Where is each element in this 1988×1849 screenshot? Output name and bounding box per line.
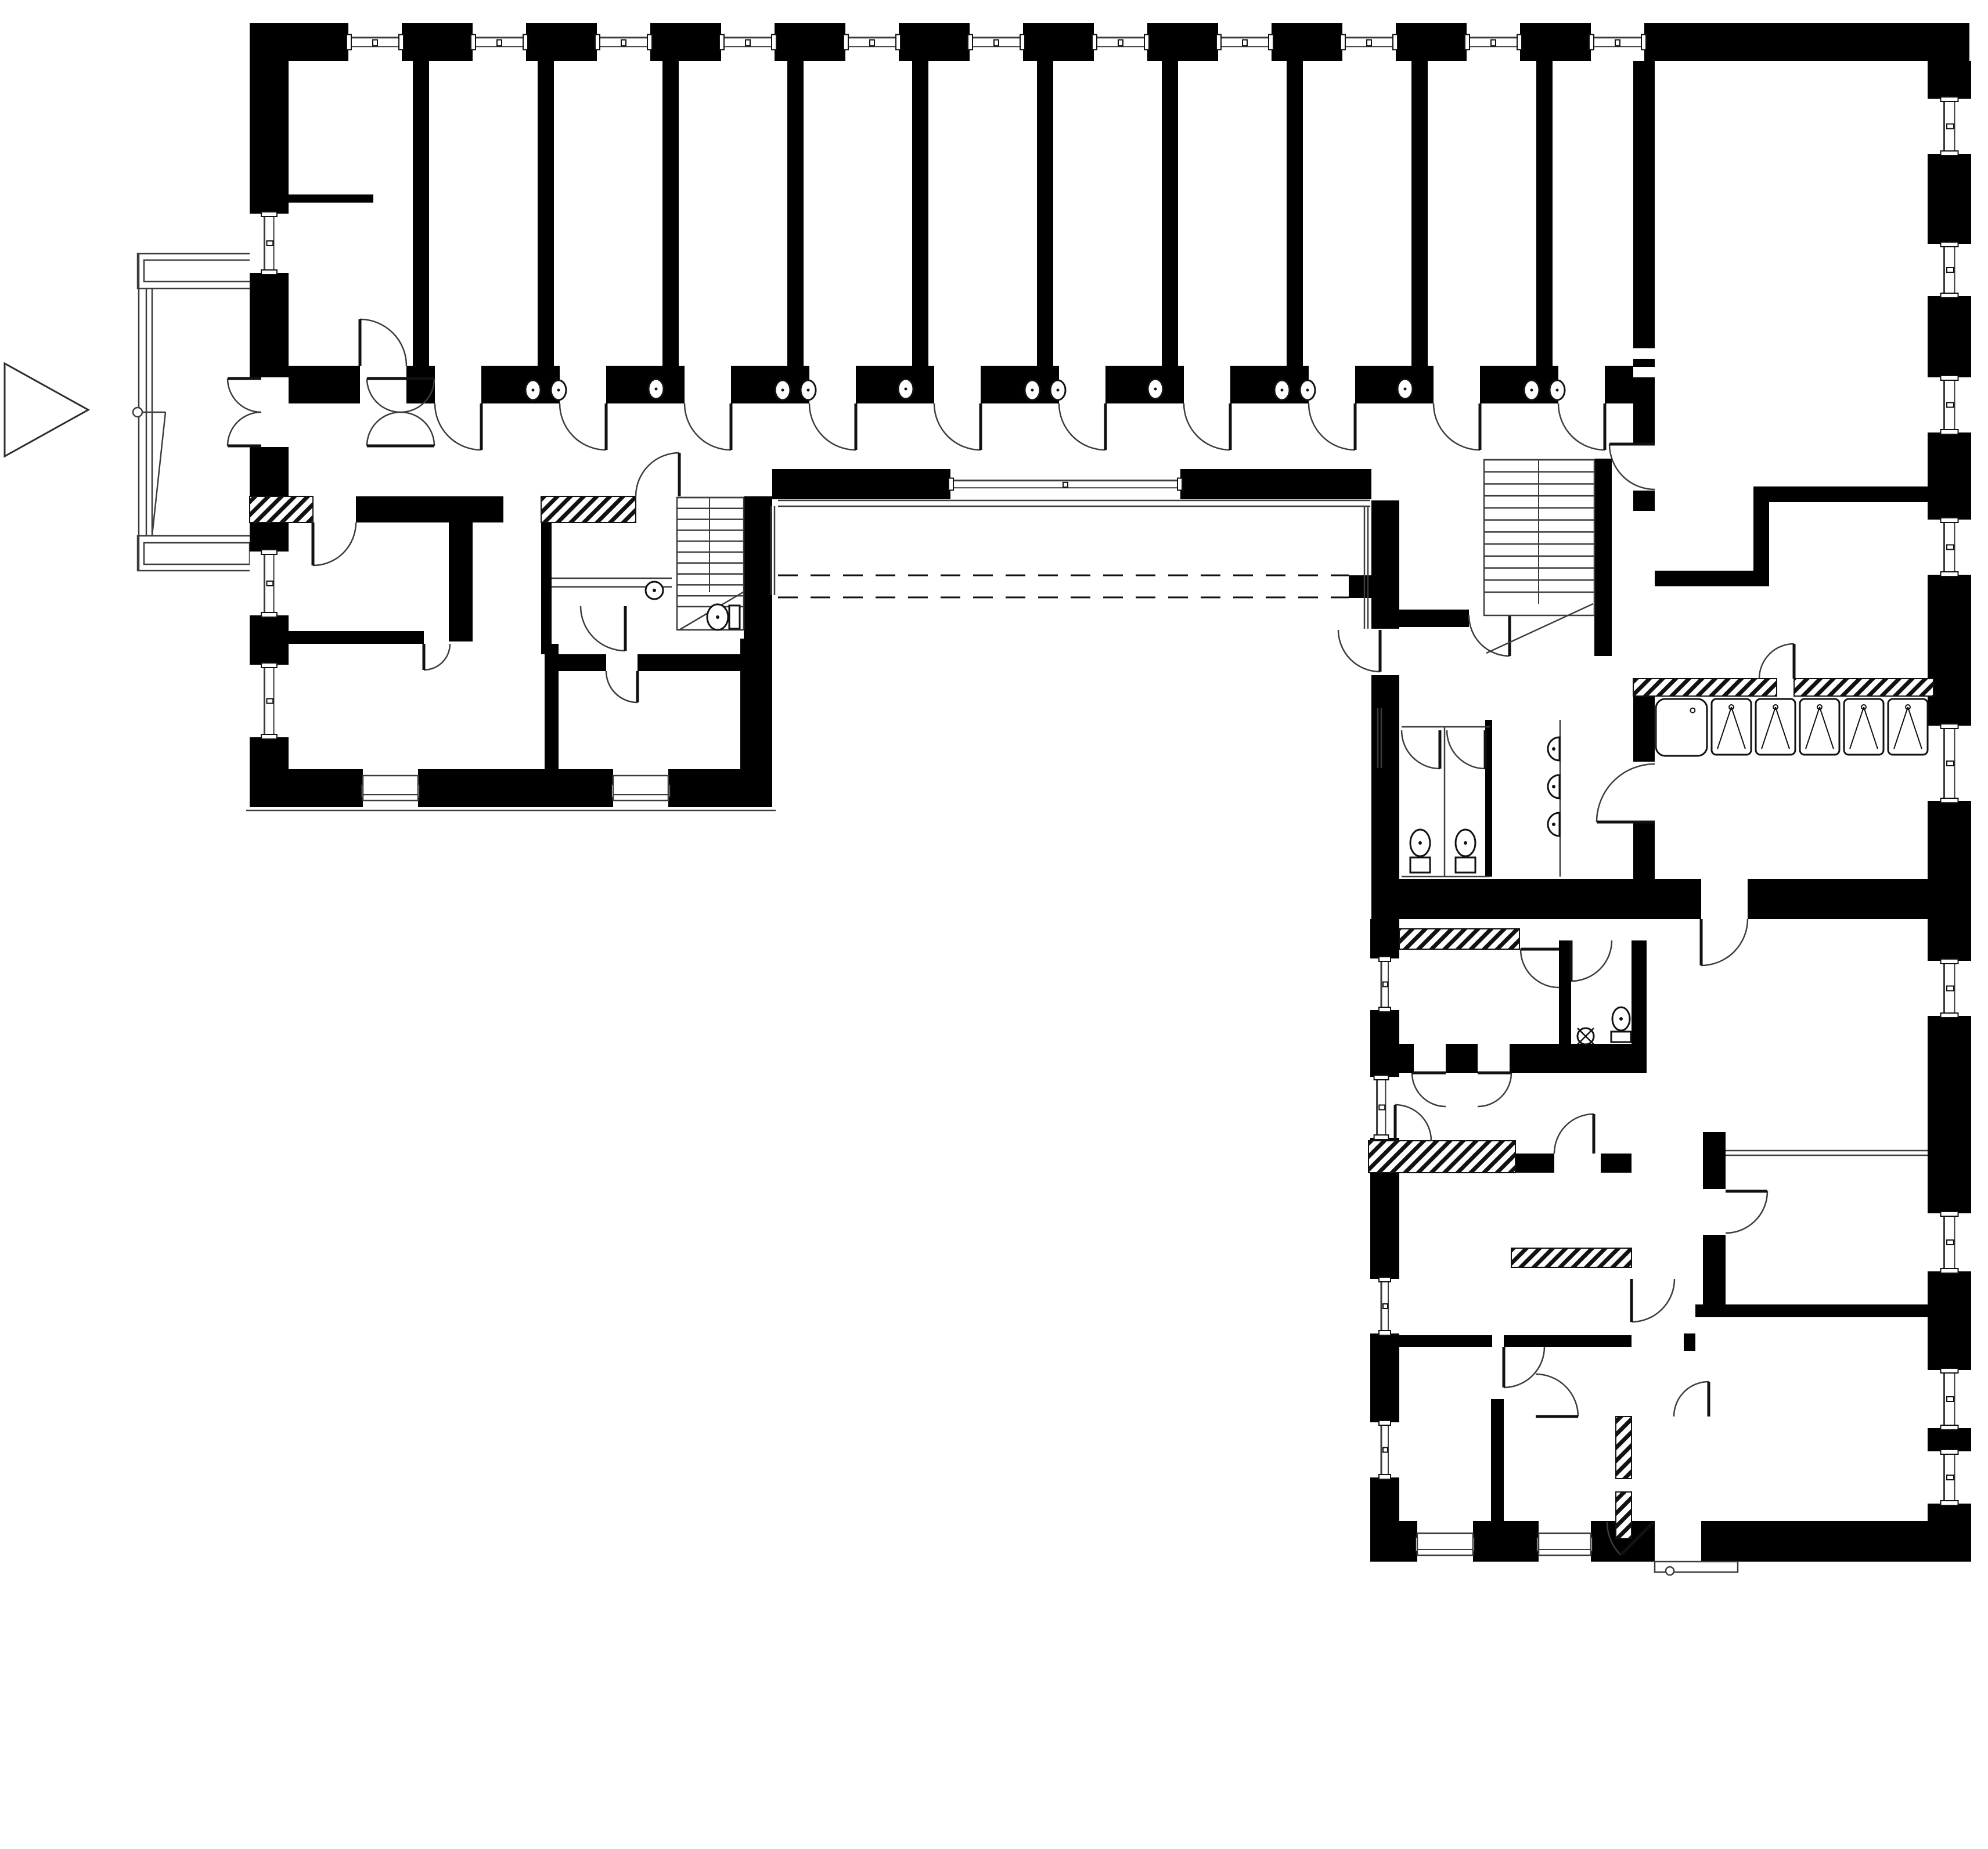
sink-icon bbox=[1154, 388, 1157, 391]
hatched-wall bbox=[1616, 1492, 1632, 1538]
window-jamb bbox=[1216, 35, 1221, 50]
window-jamb bbox=[261, 663, 277, 668]
wall bbox=[1536, 61, 1553, 366]
window-jamb bbox=[347, 35, 351, 50]
wall bbox=[912, 61, 928, 366]
window-mullion bbox=[1947, 124, 1954, 129]
window-jamb bbox=[1379, 1421, 1391, 1425]
window-jamb bbox=[1941, 1013, 1958, 1018]
window-jamb bbox=[1941, 518, 1958, 522]
bathtub-icon bbox=[1656, 699, 1707, 756]
window-mullion bbox=[266, 241, 273, 246]
wall bbox=[402, 23, 473, 61]
window-jamb bbox=[1374, 1135, 1389, 1140]
window-mullion bbox=[1947, 1397, 1954, 1401]
wall bbox=[1695, 1304, 1928, 1317]
toilet-icon bbox=[716, 615, 719, 619]
wall bbox=[1411, 61, 1428, 366]
wall bbox=[1633, 377, 1655, 444]
window-jamb bbox=[1941, 572, 1958, 576]
wall bbox=[981, 366, 1059, 403]
wall bbox=[1396, 23, 1467, 61]
window-jamb bbox=[1379, 1007, 1391, 1012]
wall bbox=[1928, 1271, 1971, 1370]
window-jamb bbox=[1941, 1212, 1958, 1216]
wall bbox=[1928, 432, 1971, 520]
window-mullion bbox=[994, 40, 999, 46]
wall bbox=[1559, 940, 1571, 1044]
sink-icon bbox=[807, 389, 810, 392]
wall bbox=[1371, 500, 1399, 629]
window-mullion bbox=[1947, 268, 1954, 272]
wall bbox=[1147, 23, 1218, 61]
wall bbox=[744, 496, 772, 639]
window-mullion bbox=[1947, 986, 1954, 991]
window-mullion bbox=[1063, 482, 1068, 487]
wall bbox=[1633, 696, 1655, 762]
window-jamb bbox=[1379, 1475, 1391, 1479]
wall bbox=[545, 644, 559, 779]
wall bbox=[650, 23, 721, 61]
wall bbox=[449, 522, 473, 641]
wall bbox=[1037, 61, 1053, 366]
wall bbox=[1399, 1335, 1492, 1347]
hatched-wall bbox=[1399, 929, 1519, 949]
hatched-wall bbox=[1794, 679, 1933, 696]
window-jamb bbox=[1941, 1425, 1958, 1430]
sink-icon bbox=[532, 389, 535, 392]
wall-sink-icon bbox=[1552, 785, 1555, 788]
window-jamb bbox=[647, 35, 652, 50]
toilet-icon bbox=[1464, 841, 1467, 845]
wall-sink-icon bbox=[1552, 823, 1555, 826]
wall bbox=[638, 654, 740, 671]
hatched-wall bbox=[1511, 1248, 1632, 1267]
window-jamb bbox=[261, 612, 277, 617]
window-mullion bbox=[373, 40, 377, 46]
window-jamb bbox=[844, 35, 848, 50]
wall bbox=[406, 366, 435, 403]
wall bbox=[1105, 366, 1184, 403]
wall bbox=[250, 769, 363, 807]
wall bbox=[1230, 366, 1309, 403]
window-jamb bbox=[261, 550, 277, 554]
wall bbox=[526, 23, 597, 61]
wall bbox=[356, 496, 503, 522]
window-mullion bbox=[1947, 761, 1954, 766]
window-jamb bbox=[1641, 35, 1646, 50]
wall bbox=[1633, 491, 1655, 511]
window-jamb bbox=[595, 35, 600, 50]
window-jamb bbox=[1941, 97, 1958, 102]
window-jamb bbox=[261, 734, 277, 739]
window-jamb bbox=[968, 35, 973, 50]
toilet-icon bbox=[1410, 857, 1430, 873]
toilet-icon bbox=[1611, 1032, 1631, 1042]
wall bbox=[1928, 1016, 1971, 1213]
hatched-wall bbox=[1633, 679, 1777, 696]
wall bbox=[1370, 1333, 1399, 1422]
window-mullion bbox=[266, 699, 273, 704]
window-jamb bbox=[399, 35, 404, 50]
sink-icon bbox=[557, 389, 560, 392]
sink-icon bbox=[781, 389, 784, 392]
hatched-wall bbox=[250, 496, 313, 522]
wall bbox=[1633, 822, 1655, 879]
window-jamb bbox=[1941, 430, 1958, 434]
sink-icon bbox=[1556, 389, 1559, 392]
wall bbox=[775, 23, 845, 61]
wall bbox=[1703, 1235, 1726, 1305]
sink-icon bbox=[1306, 389, 1309, 392]
window-jamb bbox=[1393, 35, 1398, 50]
sink-icon bbox=[905, 388, 907, 391]
wall bbox=[1473, 1521, 1539, 1562]
hatched-wall bbox=[1368, 1141, 1515, 1173]
wall bbox=[1272, 23, 1342, 61]
window-mullion bbox=[1367, 40, 1371, 46]
window-jamb bbox=[1269, 35, 1273, 50]
wall bbox=[538, 61, 554, 366]
wall bbox=[250, 615, 289, 665]
wall bbox=[1510, 1044, 1632, 1073]
window-mullion bbox=[1383, 982, 1388, 987]
window-jamb bbox=[1020, 35, 1025, 50]
window-mullion bbox=[1383, 1448, 1388, 1452]
wall bbox=[541, 522, 552, 654]
wall bbox=[1480, 366, 1558, 403]
wall bbox=[1370, 1521, 1417, 1562]
window-jamb bbox=[1092, 35, 1097, 50]
hatched-wall bbox=[541, 496, 636, 522]
window-mullion bbox=[870, 40, 874, 46]
window-jamb bbox=[1144, 35, 1149, 50]
wall bbox=[1287, 61, 1303, 366]
window-jamb bbox=[719, 35, 724, 50]
window-jamb bbox=[1941, 724, 1958, 729]
wall bbox=[1928, 575, 1971, 726]
wall bbox=[1928, 801, 1971, 961]
window-jamb bbox=[1941, 293, 1958, 298]
terrace-gate-hinge bbox=[133, 408, 142, 417]
sink-icon bbox=[1281, 389, 1284, 392]
wall bbox=[1928, 296, 1971, 377]
wall bbox=[250, 273, 289, 377]
wall bbox=[287, 631, 424, 644]
wall bbox=[1753, 486, 1933, 502]
window-jamb bbox=[1177, 478, 1182, 491]
wall bbox=[1515, 1154, 1554, 1173]
window-mullion bbox=[1118, 40, 1123, 46]
window-bench-outline bbox=[1539, 1533, 1591, 1555]
window-jamb bbox=[1941, 1368, 1958, 1373]
window-jamb bbox=[772, 35, 776, 50]
wall bbox=[1520, 23, 1591, 61]
wall bbox=[1370, 919, 1399, 958]
wall bbox=[413, 61, 429, 366]
window-mullion bbox=[1615, 40, 1620, 46]
window-jamb bbox=[1374, 1075, 1389, 1080]
wall bbox=[1023, 23, 1094, 61]
wall bbox=[1655, 571, 1769, 586]
window-mullion bbox=[1379, 1105, 1385, 1110]
window-bench-outline bbox=[613, 776, 668, 801]
wall bbox=[1928, 61, 1971, 99]
sink-icon bbox=[1057, 389, 1060, 392]
window-jamb bbox=[949, 478, 953, 491]
window-jamb bbox=[1465, 35, 1470, 50]
wall bbox=[481, 366, 560, 403]
window-jamb bbox=[1941, 376, 1958, 380]
wall bbox=[1928, 1428, 1971, 1451]
window-jamb bbox=[1941, 959, 1958, 964]
wall bbox=[1684, 1333, 1695, 1351]
window-mullion bbox=[745, 40, 750, 46]
window-jamb bbox=[1941, 1268, 1958, 1273]
window-jamb bbox=[1379, 1331, 1391, 1335]
window-jamb bbox=[896, 35, 901, 50]
sink-icon bbox=[655, 388, 658, 391]
wall bbox=[1753, 502, 1769, 571]
sink-icon bbox=[1404, 388, 1407, 391]
window-mullion bbox=[1491, 40, 1496, 46]
wall bbox=[668, 769, 772, 807]
window-jamb bbox=[471, 35, 476, 50]
wall-sink-icon bbox=[1552, 747, 1555, 751]
wall bbox=[1504, 1335, 1632, 1347]
window-mullion bbox=[266, 581, 273, 586]
window-jamb bbox=[261, 270, 277, 275]
wall bbox=[250, 61, 289, 214]
window-jamb bbox=[1941, 1450, 1958, 1454]
wall bbox=[418, 769, 613, 807]
wall bbox=[1703, 1132, 1726, 1189]
toilet-icon bbox=[1456, 857, 1475, 873]
wall bbox=[1633, 61, 1655, 348]
wall bbox=[1491, 1399, 1504, 1538]
wall bbox=[1180, 469, 1371, 499]
window-mullion bbox=[1242, 40, 1247, 46]
floor-plan-svg bbox=[0, 0, 1988, 1849]
wall bbox=[1632, 940, 1647, 1073]
window-mullion bbox=[621, 40, 626, 46]
wall bbox=[1371, 879, 1701, 919]
wall bbox=[1928, 1504, 1971, 1562]
wall bbox=[606, 366, 685, 403]
window-jamb bbox=[1941, 242, 1958, 247]
entry-porch-hinge bbox=[1666, 1567, 1674, 1575]
toilet-icon bbox=[729, 605, 740, 629]
toilet-icon bbox=[1418, 841, 1422, 845]
wall bbox=[1446, 1044, 1478, 1073]
wall bbox=[899, 23, 970, 61]
window-mullion bbox=[497, 40, 502, 46]
sink-icon bbox=[1031, 389, 1034, 392]
wall bbox=[1601, 1154, 1632, 1173]
sink-icon bbox=[1530, 389, 1533, 392]
window-jamb bbox=[1589, 35, 1594, 50]
wall bbox=[1355, 366, 1434, 403]
window-jamb bbox=[1379, 957, 1391, 961]
window-bench-outline bbox=[1417, 1533, 1473, 1555]
window-jamb bbox=[1341, 35, 1345, 50]
window-mullion bbox=[1383, 1304, 1388, 1309]
window-mullion bbox=[1947, 1475, 1954, 1480]
floor-plan-page bbox=[0, 0, 1988, 1849]
wall bbox=[1370, 1010, 1399, 1077]
wall bbox=[731, 366, 809, 403]
wall bbox=[1633, 359, 1655, 367]
wall bbox=[1644, 23, 1969, 61]
window-jamb bbox=[1941, 151, 1958, 156]
wall bbox=[289, 366, 360, 403]
window-jamb bbox=[1517, 35, 1522, 50]
wall bbox=[1928, 154, 1971, 244]
window-jamb bbox=[1379, 1277, 1391, 1282]
wall bbox=[1162, 61, 1178, 366]
toilet-icon bbox=[1619, 1017, 1623, 1021]
window-mullion bbox=[1947, 545, 1954, 550]
wall bbox=[1371, 675, 1399, 879]
wall bbox=[289, 194, 373, 203]
wall bbox=[740, 639, 772, 769]
hatched-wall bbox=[1616, 1417, 1632, 1479]
wall bbox=[787, 61, 804, 366]
window-jamb bbox=[1941, 1501, 1958, 1505]
window-mullion bbox=[1947, 1240, 1954, 1245]
window-jamb bbox=[261, 212, 277, 217]
wall bbox=[250, 23, 348, 61]
sink-icon bbox=[653, 589, 656, 592]
window-jamb bbox=[523, 35, 528, 50]
wall bbox=[856, 366, 934, 403]
wall bbox=[1594, 459, 1612, 656]
wall bbox=[662, 61, 679, 366]
wall bbox=[1605, 366, 1633, 403]
window-mullion bbox=[1947, 403, 1954, 408]
window-bench-outline bbox=[363, 776, 418, 801]
wall bbox=[772, 469, 950, 499]
wall bbox=[1399, 610, 1469, 627]
window-jamb bbox=[1941, 798, 1958, 803]
